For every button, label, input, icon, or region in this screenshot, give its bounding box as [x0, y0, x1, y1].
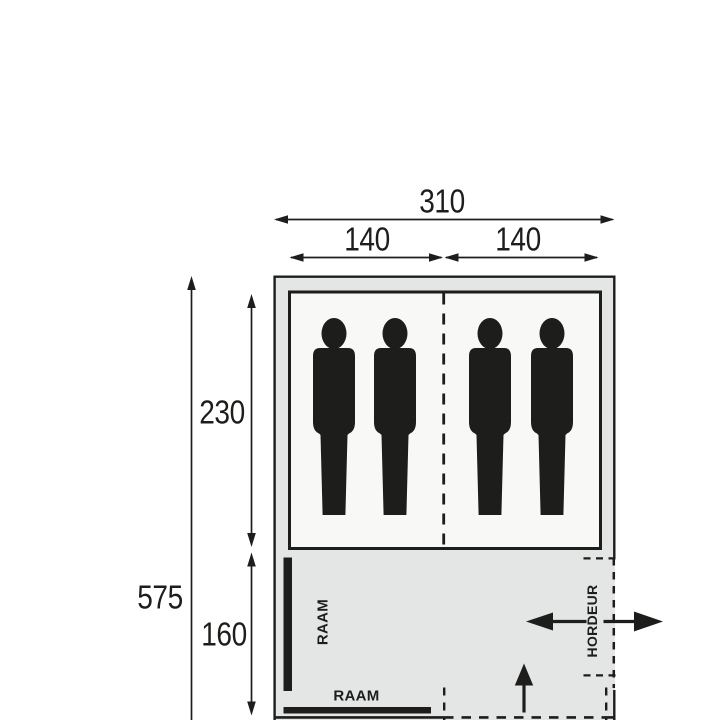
tent-floorplan: 310 140 140 575 230 160 RAAM RAAM HORDEU… [0, 0, 720, 720]
dimension-arrow-total-length [187, 276, 196, 720]
floorplan-drawing [0, 0, 720, 720]
screen-door-label: HORDEUR [585, 584, 599, 657]
window-bar-left [284, 558, 293, 692]
dimension-arrow-living-length [247, 553, 256, 716]
window-label-left: RAAM [315, 599, 330, 645]
dimension-label-cabin-left-width: 140 [344, 222, 390, 255]
dimension-label-cabin-length: 230 [199, 396, 245, 429]
dimension-label-cabin-right-width: 140 [495, 222, 541, 255]
dimension-arrow-cabin-length [247, 294, 256, 547]
window-label-bottom: RAAM [333, 688, 379, 703]
dimension-label-living-length: 160 [201, 617, 247, 650]
dimension-label-total-length: 575 [137, 581, 183, 614]
dimension-label-total-width: 310 [419, 185, 465, 218]
window-bar-bottom [284, 707, 432, 714]
